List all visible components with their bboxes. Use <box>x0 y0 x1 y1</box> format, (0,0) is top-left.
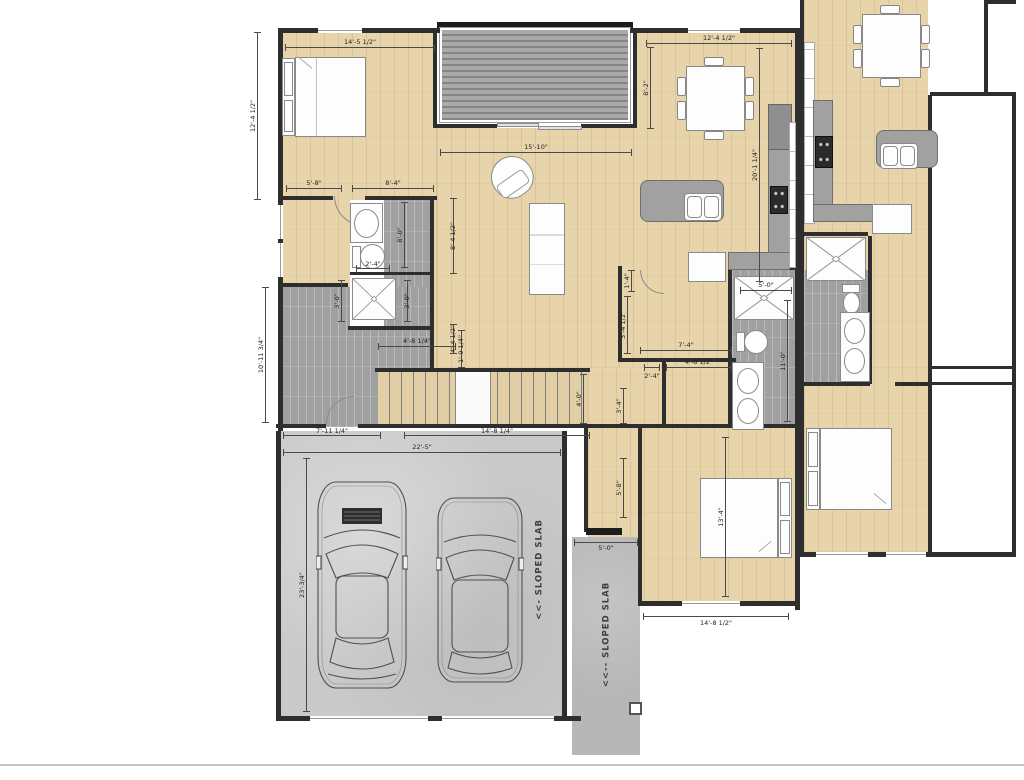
dim-label-bed2-h: 13'-4" <box>717 477 725 557</box>
dim-label-dining-h: 8'-2" <box>642 48 650 128</box>
wall-right-top-stub <box>984 0 988 92</box>
dim-label-bed1-w: 14'-5 1/2" <box>285 38 435 46</box>
dim-label-mbath-len: 11'-0" <box>779 321 787 401</box>
wall-stairs-top <box>375 368 590 372</box>
right-toilet-bowl <box>843 292 860 314</box>
dining-chair-left1 <box>677 77 686 96</box>
right-fridge <box>872 204 912 234</box>
dim-line-hall-a <box>631 270 632 292</box>
dim-label-bed2-w: 14'-8 1/2" <box>643 619 789 627</box>
right-dining-chair-left1 <box>853 25 862 44</box>
wall-right-bath-top <box>804 232 868 236</box>
dim-label-stair-top: 4'-8 1/4" <box>378 337 456 345</box>
dim-label-slab-w: 5'-0" <box>574 544 638 552</box>
right-bed-mattress <box>820 428 892 510</box>
dim-line-mbath-len <box>787 300 788 422</box>
dining-chair-top <box>704 57 724 66</box>
sloped-slab-label-garage: <<- SLOPED SLAB <box>535 510 546 630</box>
right-dining-chair-top <box>880 5 900 14</box>
wall-dining-left <box>633 28 637 128</box>
right-shower-x-icon <box>806 237 866 281</box>
window-bedroom2 <box>682 601 740 606</box>
wall-right-cut-top <box>930 92 1016 96</box>
stove <box>770 186 788 214</box>
window-bedroom1 <box>318 28 362 33</box>
dim-label-hall-e: 5'-8" <box>615 448 623 528</box>
wall-right-cut-h1 <box>930 366 1016 369</box>
dim-label-bath-hall-r: 8'-4" <box>352 179 434 187</box>
wall-garage-left <box>276 431 281 721</box>
dim-label-shower-w-l: 3'-0" <box>333 261 341 341</box>
dim-label-hall-d: 3'-4" <box>615 366 623 446</box>
wall-right-cut-right <box>1012 92 1016 554</box>
dim-line-kitchen-run <box>759 48 760 282</box>
dim-line-stair-top <box>378 346 456 347</box>
wall-bath1-mid <box>350 272 434 275</box>
dim-line-mud-h <box>265 287 266 423</box>
bath1-sink <box>354 209 379 238</box>
dim-line-garage-h <box>306 458 307 712</box>
bath1-shower-x-icon <box>352 278 396 320</box>
dim-label-stair-nose: 1'-9 1/4" <box>457 309 465 389</box>
masterbath-toilet-bowl <box>744 330 768 354</box>
page-bottom-line <box>0 764 1024 766</box>
window-right-bed-1 <box>816 552 868 557</box>
dim-line-hall-c <box>640 350 732 351</box>
dim-line-garage-w <box>283 452 561 453</box>
dim-line-shower-w-l <box>341 280 342 322</box>
wall-bed2-top <box>642 424 798 428</box>
dining-chair-right2 <box>745 101 754 120</box>
dim-line-living-w <box>440 152 632 153</box>
dim-line-stair-w <box>404 435 590 436</box>
dim-line-dining-w <box>646 43 792 44</box>
dim-label-mud-w: 7'-11 1/4" <box>283 427 381 435</box>
window-dining <box>688 28 740 33</box>
dim-label-closet-b: 4'-8 1/2" <box>666 358 732 366</box>
wall-right-bed-top-l <box>804 382 870 386</box>
dining-chair-left2 <box>677 101 686 120</box>
dim-label-bath-hall-l: 5'-8" <box>286 179 342 187</box>
dim-label-closet-a: 2'-4" <box>634 372 670 380</box>
dim-label-garage-w: 22'-5" <box>283 443 561 451</box>
right-vanity-sink2 <box>844 348 865 374</box>
dim-line-closet-a <box>644 367 660 368</box>
deck-slider-panel2 <box>538 126 582 130</box>
dim-label-kitchen-run: 20'-1 1/4" <box>751 125 759 205</box>
dim-line-bed1-w <box>285 47 435 48</box>
right-stove <box>815 136 833 168</box>
right-dining-table <box>862 14 921 78</box>
wall-bed1-bottom-l <box>278 196 333 200</box>
right-vanity-sink1 <box>844 318 865 344</box>
right-dining-chair-bottom <box>880 78 900 87</box>
window-right-bed-2 <box>886 552 926 557</box>
dim-line-slab-w <box>574 542 638 543</box>
sofa <box>529 203 565 295</box>
wall-living-top-r <box>581 124 633 128</box>
dim-line-hall-d <box>623 388 624 424</box>
wall-right-cut-h2 <box>930 382 1016 385</box>
island-sink-basin2 <box>704 196 719 218</box>
garage-door-2 <box>442 716 554 721</box>
dim-label-dining-w: 12'-4 1/2" <box>646 34 792 42</box>
window-left-2 <box>278 243 283 277</box>
dim-label-living-w: 15'-10" <box>440 143 632 151</box>
dim-line-closet-b <box>666 367 732 368</box>
wall-right-top-edge <box>984 0 1016 4</box>
dim-label-hall-c: 7'-4" <box>640 341 732 349</box>
right-dining-chair-left2 <box>853 49 862 68</box>
right-bed-headboard-shelf1 <box>808 432 818 467</box>
entry-door-threshold <box>586 528 622 535</box>
walkway-drain <box>629 702 642 715</box>
bed1-headboard-shelf2 <box>284 100 293 132</box>
dim-label-mshower-w: 5'-0" <box>740 281 792 289</box>
dining-chair-right1 <box>745 77 754 96</box>
sloped-slab-label-walkway: <<-- SLOPED SLAB <box>602 575 613 695</box>
dim-label-stair-h: 4'-0" <box>575 359 583 439</box>
masterbath-sink2 <box>737 398 759 424</box>
right-bed-headboard-shelf2 <box>808 471 818 506</box>
window-left-1 <box>278 205 283 239</box>
dim-line-dining-h <box>650 47 651 129</box>
dim-line-mshower-w <box>740 290 792 291</box>
right-dining-chair-right2 <box>921 49 930 68</box>
dim-line-hall-e <box>623 458 624 518</box>
right-island-sink-basin1 <box>883 146 898 166</box>
floor-plan: <<- SLOPED SLAB <<-- SLOPED SLAB 14'-5 1… <box>0 0 1024 780</box>
dim-label-stair-w: 14'-8 1/4" <box>404 427 590 435</box>
right-island-sink-basin2 <box>900 146 915 166</box>
island-sink-basin1 <box>687 196 702 218</box>
dim-line-hall-b <box>627 296 628 354</box>
dim-label-garage-h: 23'-3/4" <box>298 545 306 625</box>
wall-shower1-bottom <box>348 326 434 330</box>
dining-chair-bottom <box>704 131 724 140</box>
deck <box>440 28 630 122</box>
dim-line-bed1-h <box>257 32 258 200</box>
wall-bed2-left <box>638 428 642 605</box>
dim-line-bed2-h <box>725 437 726 597</box>
dim-line-toilet-w <box>356 268 390 269</box>
garage-door-1 <box>310 716 428 721</box>
dim-label-mud-h: 10'-11 3/4" <box>257 315 265 395</box>
wall-garage-right <box>562 431 567 716</box>
masterbath-sink1 <box>737 368 759 394</box>
dim-label-shower-w-r: 3'-0" <box>403 261 411 341</box>
dim-label-bath-side-u: 8'-4 1/2" <box>449 196 457 276</box>
right-kitchen-counter-bottom <box>813 204 873 222</box>
bed2-headboard-shelf1 <box>780 482 790 516</box>
dim-line-stair-h <box>583 374 584 424</box>
dim-label-hall-b: 3'-4 1/2" <box>619 285 627 365</box>
dim-label-bath-side-l: 4'-4 1/2" <box>449 299 457 379</box>
kitchen-wall-cabinets <box>789 122 796 268</box>
car-sedan <box>316 480 408 690</box>
bed2-headboard-shelf2 <box>780 520 790 554</box>
bed1-linen-line <box>316 58 317 136</box>
wall-entry-left <box>584 428 588 532</box>
dim-line-bath-hall-l <box>286 188 342 189</box>
wall-living-top-l <box>437 124 497 128</box>
dim-label-bed1-h: 12'-4 1/2" <box>249 76 257 156</box>
dim-line-mud-w <box>283 435 381 436</box>
dining-table <box>686 66 745 131</box>
right-dining-chair-right1 <box>921 25 930 44</box>
bed1-headboard-shelf1 <box>284 62 293 96</box>
dim-label-toilet-w: 2'-4" <box>356 260 390 268</box>
wall-right-bed-top-r <box>895 382 928 386</box>
car-suv <box>436 496 524 684</box>
bed1-mattress <box>295 57 366 137</box>
fridge <box>688 252 726 282</box>
dim-line-bath-len <box>404 202 405 268</box>
deck-slider-panel1 <box>497 123 539 127</box>
dim-line-bed2-w <box>643 616 789 617</box>
dim-line-bath-hall-r <box>352 188 434 189</box>
